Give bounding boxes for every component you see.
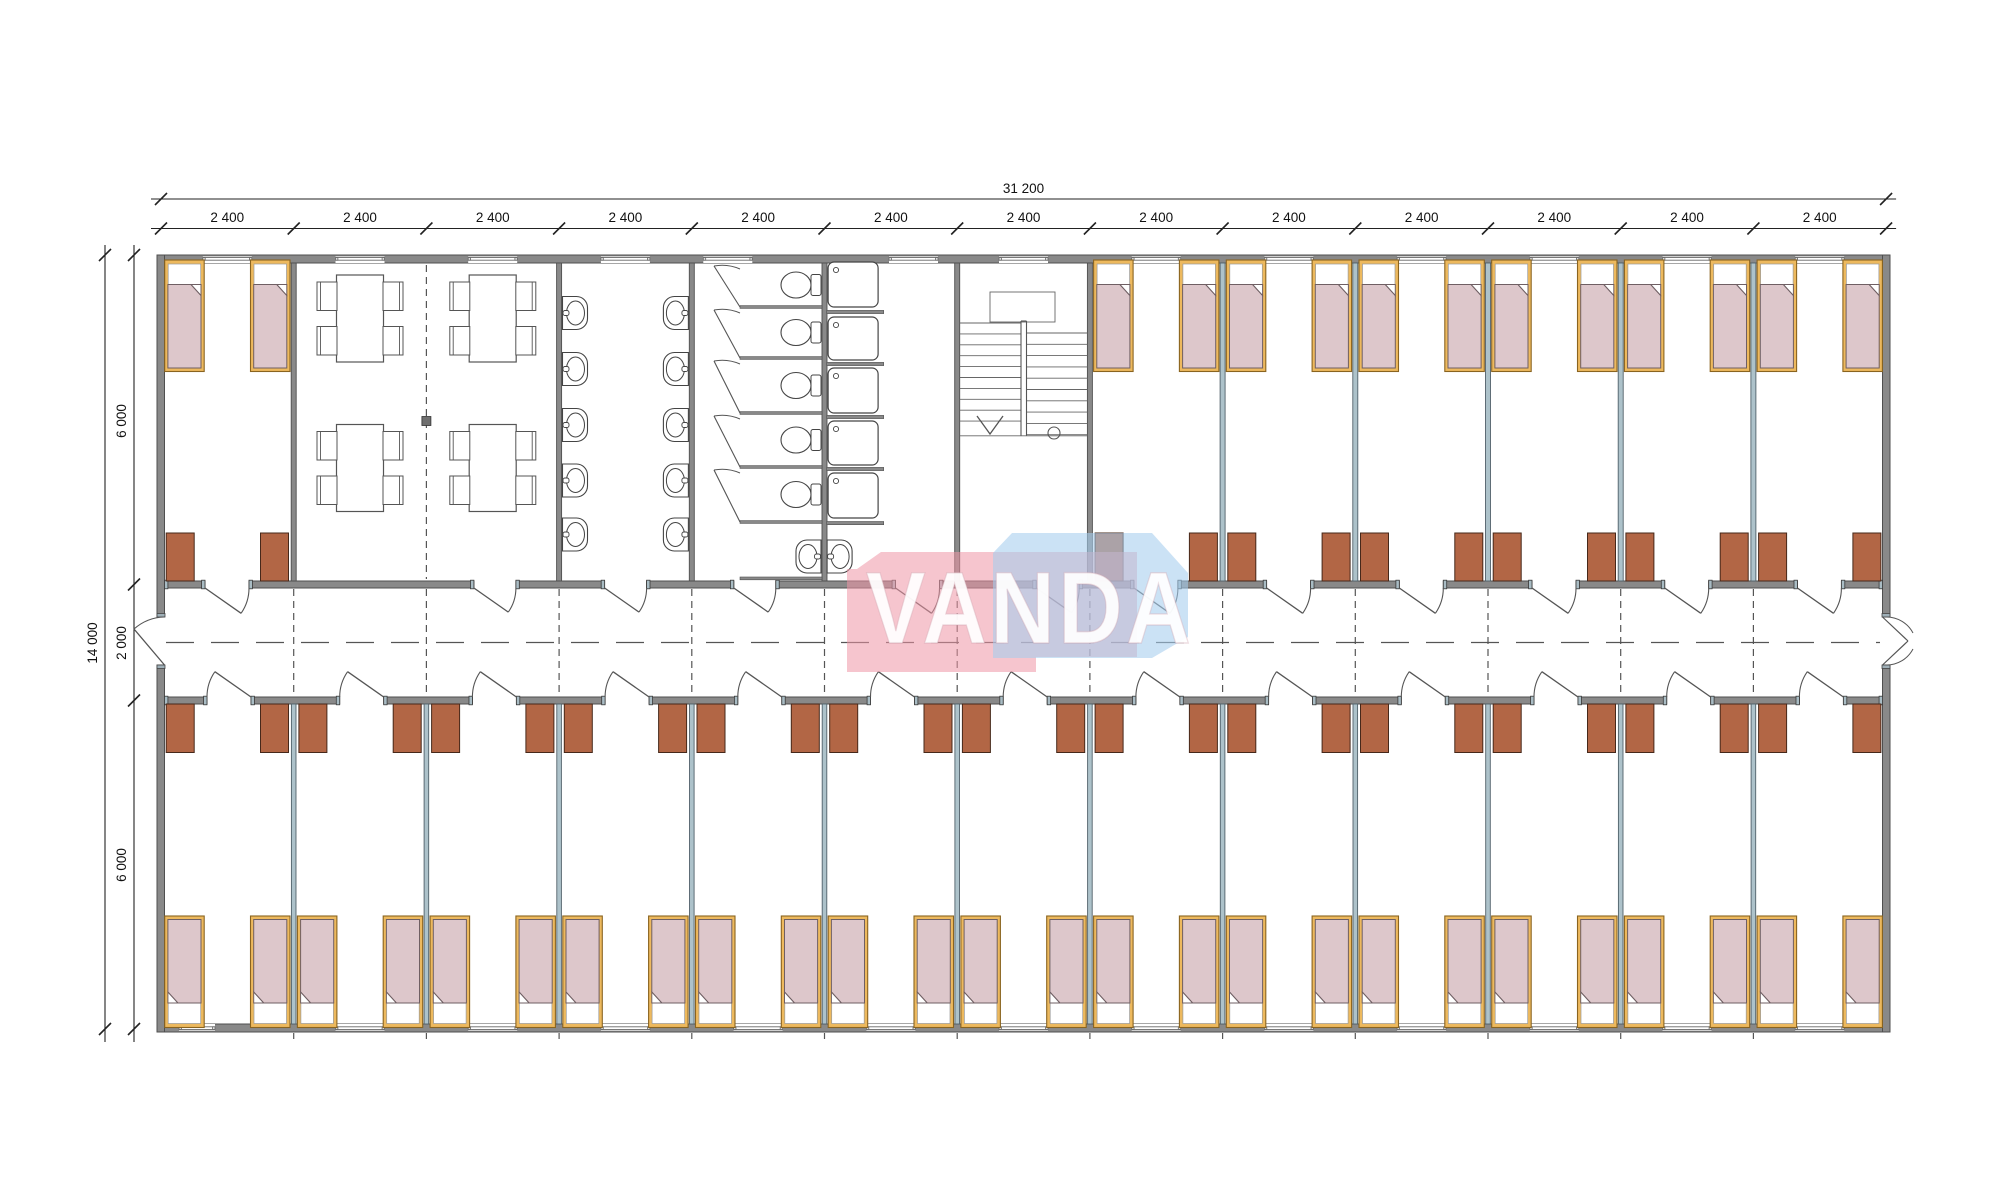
- svg-text:2 400: 2 400: [741, 210, 775, 225]
- svg-text:2 400: 2 400: [874, 210, 908, 225]
- svg-text:2 400: 2 400: [1139, 210, 1173, 225]
- svg-text:2 400: 2 400: [1272, 210, 1306, 225]
- svg-text:2 400: 2 400: [1405, 210, 1439, 225]
- svg-text:6 000: 6 000: [114, 404, 129, 438]
- svg-text:2 400: 2 400: [476, 210, 510, 225]
- svg-text:2 400: 2 400: [1803, 210, 1837, 225]
- svg-text:31 200: 31 200: [1003, 181, 1044, 196]
- svg-text:2 400: 2 400: [210, 210, 244, 225]
- svg-text:14 000: 14 000: [85, 622, 100, 663]
- svg-text:VANDA: VANDA: [866, 551, 1194, 665]
- svg-text:6 000: 6 000: [114, 848, 129, 882]
- svg-text:2 000: 2 000: [114, 626, 129, 660]
- svg-text:2 400: 2 400: [609, 210, 643, 225]
- svg-text:2 400: 2 400: [1537, 210, 1571, 225]
- svg-text:2 400: 2 400: [1007, 210, 1041, 225]
- svg-text:2 400: 2 400: [343, 210, 377, 225]
- svg-text:2 400: 2 400: [1670, 210, 1704, 225]
